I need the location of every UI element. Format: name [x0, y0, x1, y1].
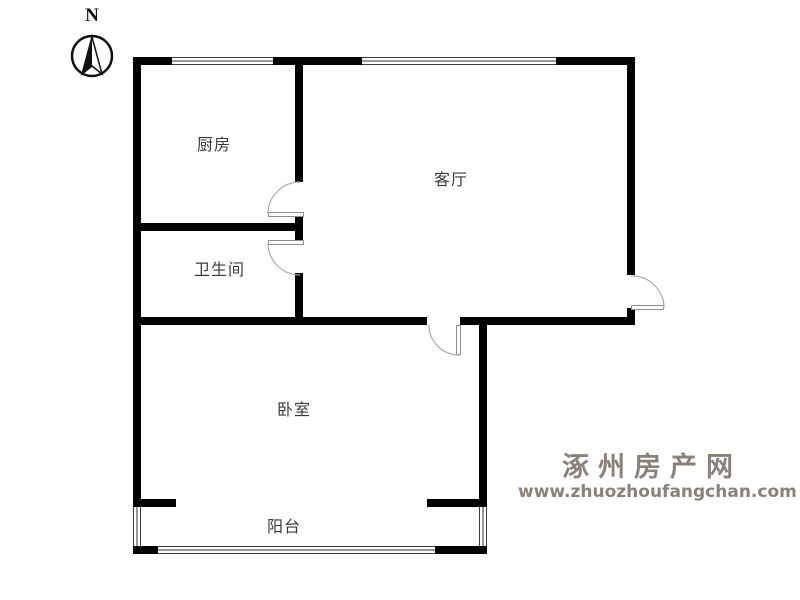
- wall-kitchen-bathroom-divider: [133, 223, 303, 231]
- window-balcony-left-side: [133, 507, 141, 546]
- room-label-living-room: 客厅: [434, 166, 468, 190]
- wall-bedroom-right: [479, 317, 487, 507]
- room-label-bedroom: 卧室: [277, 396, 311, 420]
- wall-balcony-corner-right: [435, 546, 487, 554]
- door-leaf-kitchen: [268, 212, 304, 217]
- wall-kitchen-right: [295, 57, 303, 182]
- room-label-kitchen: 厨房: [197, 131, 231, 155]
- window-balcony-right-side: [479, 507, 487, 546]
- door-leaf-bathroom: [268, 240, 304, 245]
- wall-right-exterior: [627, 57, 635, 275]
- wall-balcony-corner-left: [133, 546, 158, 554]
- door-leaf-entry: [631, 305, 664, 310]
- watermark-site-name: 涿州房产网: [518, 452, 786, 483]
- wall-top-middle: [273, 57, 362, 65]
- compass: N: [68, 8, 116, 90]
- door-leaf-bedroom: [456, 325, 461, 355]
- watermark: 涿州房产网 www.zhuozhoufangchan.com: [518, 452, 786, 503]
- door-arc-kitchen: [268, 182, 300, 214]
- door-arc-bathroom: [268, 243, 300, 275]
- floor-plan-canvas: N 厨房 客厅 卫生间 卧室 阳台 涿州房: [0, 0, 800, 600]
- window-balcony: [158, 546, 435, 554]
- door-arc-layer: [0, 0, 800, 600]
- wall-bedroom-bottom-left: [133, 499, 176, 507]
- door-arc-entry: [631, 276, 664, 308]
- room-label-bathroom: 卫生间: [194, 256, 245, 280]
- wall-bedroom-bottom-right: [427, 499, 487, 507]
- compass-north-label: N: [68, 8, 116, 24]
- wall-main-horizontal-left: [133, 317, 427, 325]
- compass-icon: [68, 24, 116, 86]
- window-kitchen: [172, 57, 273, 65]
- room-label-balcony: 阳台: [267, 513, 301, 537]
- wall-top-right: [556, 57, 635, 65]
- watermark-site-url: www.zhuozhoufangchan.com: [518, 483, 786, 503]
- wall-left-exterior: [133, 57, 141, 507]
- window-living-room: [362, 57, 556, 65]
- door-arc-bedroom: [429, 325, 459, 355]
